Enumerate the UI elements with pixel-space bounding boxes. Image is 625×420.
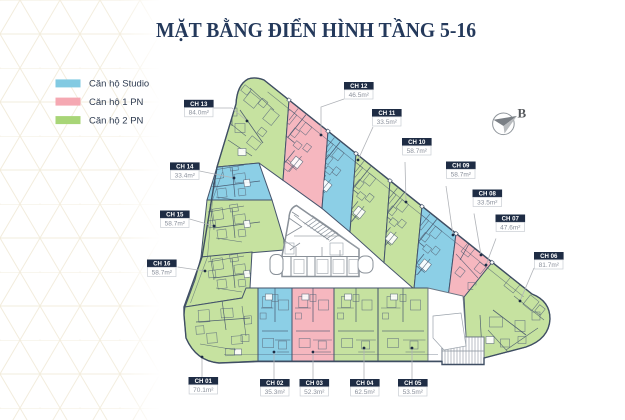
svg-text:Căn hộ 2 PN: Căn hộ 2 PN	[89, 115, 144, 126]
svg-text:58.7m²: 58.7m²	[165, 220, 186, 227]
svg-text:CH 11: CH 11	[378, 110, 396, 117]
svg-text:CH 09: CH 09	[452, 163, 470, 170]
svg-text:52.3m²: 52.3m²	[304, 389, 325, 396]
svg-text:47.6m²: 47.6m²	[500, 224, 521, 231]
svg-text:CH 05: CH 05	[404, 380, 422, 387]
svg-text:CH 01: CH 01	[195, 378, 213, 385]
svg-text:33.4m²: 33.4m²	[175, 172, 196, 179]
svg-text:Căn hộ 1 PN: Căn hộ 1 PN	[89, 97, 144, 108]
svg-text:CH 16: CH 16	[153, 261, 171, 268]
svg-text:CH 02: CH 02	[266, 380, 284, 387]
svg-text:Căn hộ Studio: Căn hộ Studio	[89, 79, 149, 90]
svg-text:CH 04: CH 04	[356, 380, 374, 387]
svg-text:CH 08: CH 08	[479, 191, 497, 198]
svg-text:84.0m²: 84.0m²	[189, 110, 210, 117]
svg-text:CH 10: CH 10	[408, 139, 426, 146]
svg-text:MẶT BẰNG ĐIỂN HÌNH TẦNG 5-16: MẶT BẰNG ĐIỂN HÌNH TẦNG 5-16	[156, 18, 476, 42]
svg-text:CH 03: CH 03	[306, 380, 324, 387]
svg-text:CH 15: CH 15	[166, 212, 184, 219]
svg-text:CH 12: CH 12	[350, 83, 368, 90]
svg-text:CH 07: CH 07	[502, 216, 520, 223]
svg-text:53.5m²: 53.5m²	[403, 389, 424, 396]
svg-text:B: B	[518, 106, 527, 121]
svg-text:58.7m²: 58.7m²	[407, 148, 428, 155]
svg-text:CH 13: CH 13	[190, 101, 208, 108]
svg-text:35.3m²: 35.3m²	[265, 389, 286, 396]
svg-text:58.7m²: 58.7m²	[451, 171, 472, 178]
svg-text:33.5m²: 33.5m²	[477, 199, 498, 206]
svg-text:CH 06: CH 06	[540, 253, 558, 260]
svg-text:70.1m²: 70.1m²	[193, 387, 214, 394]
svg-text:62.5m²: 62.5m²	[355, 389, 376, 396]
svg-text:CH 14: CH 14	[176, 164, 194, 171]
svg-text:58.7m²: 58.7m²	[152, 269, 173, 276]
svg-text:46.5m²: 46.5m²	[349, 92, 370, 99]
svg-text:81.7m²: 81.7m²	[539, 262, 560, 269]
svg-text:33.5m²: 33.5m²	[377, 119, 398, 126]
